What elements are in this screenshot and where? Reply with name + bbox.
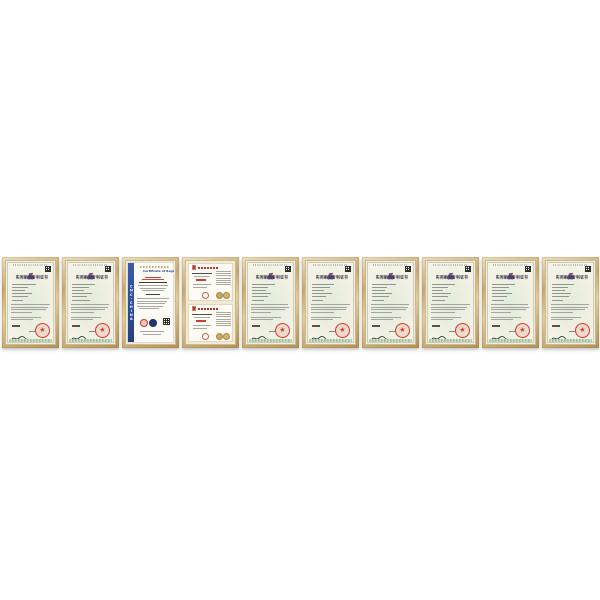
certificate-frame-3[interactable]: CNC-CHINACertificate of Registration bbox=[122, 257, 179, 348]
red-subline bbox=[145, 277, 161, 278]
patent-title: 实用新型专利证书 bbox=[376, 276, 405, 280]
info-line bbox=[12, 293, 32, 294]
info-line bbox=[492, 296, 507, 297]
fine-print-line bbox=[216, 284, 231, 285]
patent-certificate-paper: 实用新型专利证书★ bbox=[487, 262, 534, 343]
patent-certificate-paper: 实用新型专利证书★ bbox=[547, 262, 594, 343]
qr-code-icon bbox=[45, 266, 51, 272]
frame-mat: 实用新型专利证书★ bbox=[485, 260, 536, 345]
red-official-seal-stamp: ★ bbox=[334, 322, 351, 339]
detail-line bbox=[137, 306, 163, 307]
info-line bbox=[72, 293, 92, 294]
fine-print-line bbox=[216, 271, 231, 272]
paragraph-line bbox=[371, 307, 408, 308]
frame-mat: 实用新型专利证书★ bbox=[65, 260, 116, 345]
qr-code-icon bbox=[585, 266, 591, 272]
paragraph-line bbox=[251, 307, 289, 308]
fine-print-line bbox=[216, 321, 231, 322]
paragraph-line bbox=[371, 312, 392, 313]
cnipa-emblem-icon bbox=[446, 266, 455, 275]
signature-scribble bbox=[251, 327, 267, 334]
red-official-seal-stamp: ★ bbox=[394, 322, 411, 339]
qr-code-icon bbox=[405, 266, 411, 272]
frame-mat: 实用新型专利证书★ bbox=[425, 260, 476, 345]
frame-mat: 实用新型专利证书★ bbox=[245, 260, 296, 345]
qr-code-icon bbox=[285, 266, 291, 272]
info-line bbox=[312, 296, 326, 297]
info-line bbox=[312, 290, 324, 291]
rating-red-line bbox=[196, 279, 206, 281]
green-border-band bbox=[369, 339, 412, 342]
navy-accreditation-badge-icon bbox=[149, 319, 157, 327]
info-line bbox=[552, 290, 565, 291]
info-line bbox=[252, 293, 271, 294]
paragraph-line bbox=[491, 307, 529, 308]
body-line bbox=[193, 287, 207, 288]
fine-print-line bbox=[216, 319, 231, 320]
certificate-frame-5[interactable]: 实用新型专利证书★ bbox=[242, 257, 299, 348]
frame-mat: CNC-CHINACertificate of Registration bbox=[125, 260, 176, 345]
signature-scribble bbox=[431, 327, 447, 334]
paragraph-line bbox=[431, 309, 465, 310]
patent-certificate-paper: 实用新型专利证书★ bbox=[367, 262, 414, 343]
awardee-name-line bbox=[192, 273, 212, 274]
small-red-seal-stamp bbox=[202, 333, 209, 340]
clause-line bbox=[311, 319, 333, 320]
signature-scribble bbox=[491, 327, 507, 334]
paragraph-line bbox=[311, 304, 350, 305]
paragraph-line bbox=[431, 312, 455, 313]
paragraph-line bbox=[371, 304, 409, 305]
certificate-frame-1[interactable]: 实用新型专利证书★ bbox=[2, 257, 59, 348]
gold-medal-icon bbox=[216, 292, 223, 299]
gold-medal-icon bbox=[223, 292, 230, 299]
signature-scribble bbox=[11, 327, 27, 334]
clause-line bbox=[551, 319, 573, 320]
signature-scribble bbox=[371, 327, 387, 334]
honor-title-row bbox=[198, 308, 218, 310]
info-line bbox=[552, 293, 571, 294]
patent-certificate-paper: 实用新型专利证书★ bbox=[7, 262, 54, 343]
paragraph-line bbox=[311, 307, 347, 308]
green-border-band bbox=[429, 339, 472, 342]
honor-certificate-half-1 bbox=[188, 263, 233, 301]
page-canvas: 实用新型专利证书★实用新型专利证书★CNC-CHINACertificate o… bbox=[0, 0, 600, 600]
info-line bbox=[552, 287, 568, 288]
footer-line bbox=[143, 334, 161, 335]
paragraph-line bbox=[11, 312, 32, 313]
certificate-frame-9[interactable]: 实用新型专利证书★ bbox=[482, 257, 539, 348]
red-official-seal-stamp: ★ bbox=[34, 322, 51, 339]
info-line bbox=[492, 300, 504, 301]
green-border-band bbox=[309, 339, 352, 342]
info-line bbox=[312, 284, 334, 285]
info-line bbox=[552, 300, 563, 301]
clause-line bbox=[491, 319, 513, 320]
info-line bbox=[72, 296, 87, 297]
frame-mat: 实用新型专利证书★ bbox=[5, 260, 56, 345]
scope-line bbox=[138, 285, 168, 286]
info-line bbox=[492, 290, 506, 291]
info-line bbox=[72, 300, 90, 301]
rating-red-line bbox=[196, 320, 206, 322]
qr-code-icon bbox=[345, 266, 351, 272]
red-official-seal-stamp: ★ bbox=[514, 322, 531, 339]
certificate-gallery: 实用新型专利证书★实用新型专利证书★CNC-CHINACertificate o… bbox=[2, 257, 599, 348]
clause-line bbox=[71, 317, 101, 318]
qr-code-icon bbox=[163, 318, 170, 325]
scope-line bbox=[142, 290, 164, 291]
patent-certificate-paper: 实用新型专利证书★ bbox=[67, 262, 114, 343]
frame-mat: 实用新型专利证书★ bbox=[305, 260, 356, 345]
info-line bbox=[372, 296, 389, 297]
paragraph-line bbox=[251, 312, 271, 313]
info-line bbox=[432, 293, 451, 294]
patent-title: 实用新型专利证书 bbox=[436, 276, 465, 280]
patent-title: 实用新型专利证书 bbox=[316, 276, 345, 280]
info-line bbox=[252, 290, 266, 291]
info-line bbox=[432, 290, 443, 291]
body-line bbox=[193, 325, 211, 326]
fine-print-line bbox=[216, 282, 231, 283]
info-line bbox=[252, 296, 268, 297]
gold-medal-icon bbox=[223, 333, 230, 340]
paragraph-line bbox=[431, 307, 467, 308]
gold-header-row bbox=[140, 266, 169, 268]
clause-line bbox=[71, 319, 93, 320]
cnipa-emblem-icon bbox=[326, 266, 335, 275]
paragraph-line bbox=[431, 304, 470, 305]
info-line bbox=[312, 300, 323, 301]
cnipa-emblem-icon bbox=[386, 266, 395, 275]
paragraph-line bbox=[371, 309, 406, 310]
fine-print-line bbox=[216, 325, 231, 326]
info-line bbox=[252, 284, 275, 285]
clause-line bbox=[311, 317, 341, 318]
awardee-name-line bbox=[192, 314, 212, 315]
iso-certificate-paper: CNC-CHINACertificate of Registration bbox=[127, 262, 174, 343]
fine-print-line bbox=[216, 275, 231, 276]
certificate-frame-6[interactable]: 实用新型专利证书★ bbox=[302, 257, 359, 348]
patent-certificate-paper: 实用新型专利证书★ bbox=[247, 262, 294, 343]
subtitle-line bbox=[194, 317, 210, 318]
patent-title: 实用新型专利证书 bbox=[496, 276, 525, 280]
cnipa-emblem-icon bbox=[506, 266, 515, 275]
paragraph-line bbox=[71, 304, 109, 305]
paragraph-line bbox=[491, 312, 511, 313]
honor-certificate-half-2 bbox=[188, 304, 233, 342]
paragraph-line bbox=[311, 309, 346, 310]
info-line bbox=[12, 284, 36, 285]
red-emblem-icon bbox=[192, 265, 196, 270]
patent-certificate-paper: 实用新型专利证书★ bbox=[307, 262, 354, 343]
info-line bbox=[432, 287, 448, 288]
honor-title-row bbox=[198, 267, 218, 269]
info-line bbox=[372, 284, 396, 285]
paragraph-line bbox=[251, 304, 288, 305]
signature-scribble bbox=[551, 327, 567, 334]
iso-side-band: CNC-CHINA bbox=[128, 263, 134, 342]
paragraph-line bbox=[71, 307, 108, 308]
info-line bbox=[492, 284, 515, 285]
clause-line bbox=[371, 317, 401, 318]
fine-print-line bbox=[216, 280, 231, 281]
certificate-frame-7[interactable]: 实用新型专利证书★ bbox=[362, 257, 419, 348]
paragraph-line bbox=[551, 312, 573, 313]
frame-mat: 实用新型专利证书★ bbox=[365, 260, 416, 345]
info-line bbox=[372, 290, 385, 291]
paragraph-line bbox=[71, 312, 94, 313]
paragraph-line bbox=[11, 304, 50, 305]
clause-line bbox=[11, 317, 41, 318]
iso-side-band-text: CNC-CHINA bbox=[129, 284, 132, 321]
green-border-band bbox=[249, 339, 292, 342]
info-line bbox=[12, 296, 28, 297]
clause-line bbox=[251, 319, 273, 320]
signature-scribble bbox=[71, 327, 87, 334]
fine-print-line bbox=[216, 323, 231, 324]
clause-line bbox=[11, 319, 33, 320]
clause-line bbox=[431, 319, 453, 320]
info-line bbox=[12, 290, 25, 291]
paragraph-line bbox=[491, 304, 528, 305]
paragraph-line bbox=[551, 307, 588, 308]
green-border-band bbox=[69, 339, 112, 342]
cnipa-emblem-icon bbox=[26, 266, 35, 275]
cnipa-emblem-icon bbox=[266, 266, 275, 275]
red-official-seal-stamp: ★ bbox=[94, 322, 111, 339]
green-border-band bbox=[9, 339, 52, 342]
cnipa-emblem-icon bbox=[566, 266, 575, 275]
patent-title: 实用新型专利证书 bbox=[76, 276, 105, 280]
body-line bbox=[193, 328, 207, 329]
info-line bbox=[72, 287, 89, 288]
paragraph-line bbox=[11, 307, 48, 308]
gold-medal-icon bbox=[216, 333, 223, 340]
info-line bbox=[252, 300, 264, 301]
clause-line bbox=[251, 317, 281, 318]
footer-line bbox=[140, 331, 164, 332]
info-line bbox=[312, 293, 332, 294]
info-line bbox=[552, 296, 569, 297]
paragraph-line bbox=[311, 312, 334, 313]
certificate-frame-10[interactable]: 实用新型专利证书★ bbox=[542, 257, 599, 348]
body-line bbox=[193, 284, 211, 285]
subtitle-line bbox=[194, 276, 210, 277]
cnipa-emblem-icon bbox=[86, 266, 95, 275]
detail-line bbox=[137, 303, 165, 304]
info-line bbox=[252, 287, 268, 288]
info-line bbox=[492, 293, 512, 294]
qr-code-icon bbox=[465, 266, 471, 272]
fine-print-line bbox=[216, 278, 231, 279]
info-line bbox=[432, 300, 445, 301]
info-line bbox=[492, 287, 509, 288]
paragraph-line bbox=[251, 309, 285, 310]
clause-line bbox=[431, 317, 461, 318]
fine-print-line bbox=[216, 314, 231, 315]
iso-title: Certificate of Registration bbox=[143, 270, 163, 273]
certificate-frame-2[interactable]: 实用新型专利证书★ bbox=[62, 257, 119, 348]
info-line bbox=[372, 287, 387, 288]
clause-line bbox=[371, 319, 393, 320]
info-line bbox=[312, 287, 330, 288]
paragraph-line bbox=[491, 309, 526, 310]
green-border-band bbox=[489, 339, 532, 342]
detail-line bbox=[137, 301, 167, 302]
paragraph-line bbox=[551, 309, 585, 310]
patent-title: 实用新型专利证书 bbox=[256, 276, 285, 280]
red-accreditation-badge-icon bbox=[140, 319, 148, 327]
clause-line bbox=[491, 317, 521, 318]
fine-print-line bbox=[216, 316, 231, 317]
honor-certificates-paper bbox=[187, 262, 234, 343]
company-name-line bbox=[139, 282, 167, 283]
signature-scribble bbox=[311, 327, 327, 334]
info-line bbox=[552, 284, 574, 285]
frame-mat: 实用新型专利证书★ bbox=[545, 260, 596, 345]
qr-code-icon bbox=[105, 266, 111, 272]
scope-line bbox=[140, 288, 166, 289]
info-line bbox=[432, 296, 448, 297]
detail-line bbox=[137, 298, 169, 299]
red-official-seal-stamp: ★ bbox=[454, 322, 471, 339]
green-border-band bbox=[549, 339, 592, 342]
info-line bbox=[12, 300, 23, 301]
fine-print-line bbox=[216, 312, 231, 313]
standard-line bbox=[146, 294, 160, 296]
red-subline bbox=[142, 279, 164, 280]
paragraph-line bbox=[71, 309, 105, 310]
patent-title: 实用新型专利证书 bbox=[556, 276, 585, 280]
frame-mat bbox=[185, 260, 236, 345]
red-official-seal-stamp: ★ bbox=[274, 322, 291, 339]
red-official-seal-stamp: ★ bbox=[574, 322, 591, 339]
paragraph-line bbox=[551, 304, 589, 305]
fine-print-line bbox=[216, 273, 231, 274]
patent-certificate-paper: 实用新型专利证书★ bbox=[427, 262, 474, 343]
info-line bbox=[432, 284, 455, 285]
certificate-frame-8[interactable]: 实用新型专利证书★ bbox=[422, 257, 479, 348]
small-red-seal-stamp bbox=[202, 292, 209, 299]
clause-line bbox=[551, 317, 581, 318]
info-line bbox=[372, 293, 392, 294]
patent-title: 实用新型专利证书 bbox=[16, 276, 45, 280]
certificate-frame-4[interactable] bbox=[182, 257, 239, 348]
paragraph-line bbox=[11, 309, 46, 310]
info-line bbox=[12, 287, 28, 288]
info-line bbox=[372, 300, 384, 301]
detail-line bbox=[139, 308, 159, 309]
qr-code-icon bbox=[525, 266, 531, 272]
info-line bbox=[72, 290, 84, 291]
red-emblem-icon bbox=[192, 306, 196, 311]
info-line bbox=[72, 284, 95, 285]
